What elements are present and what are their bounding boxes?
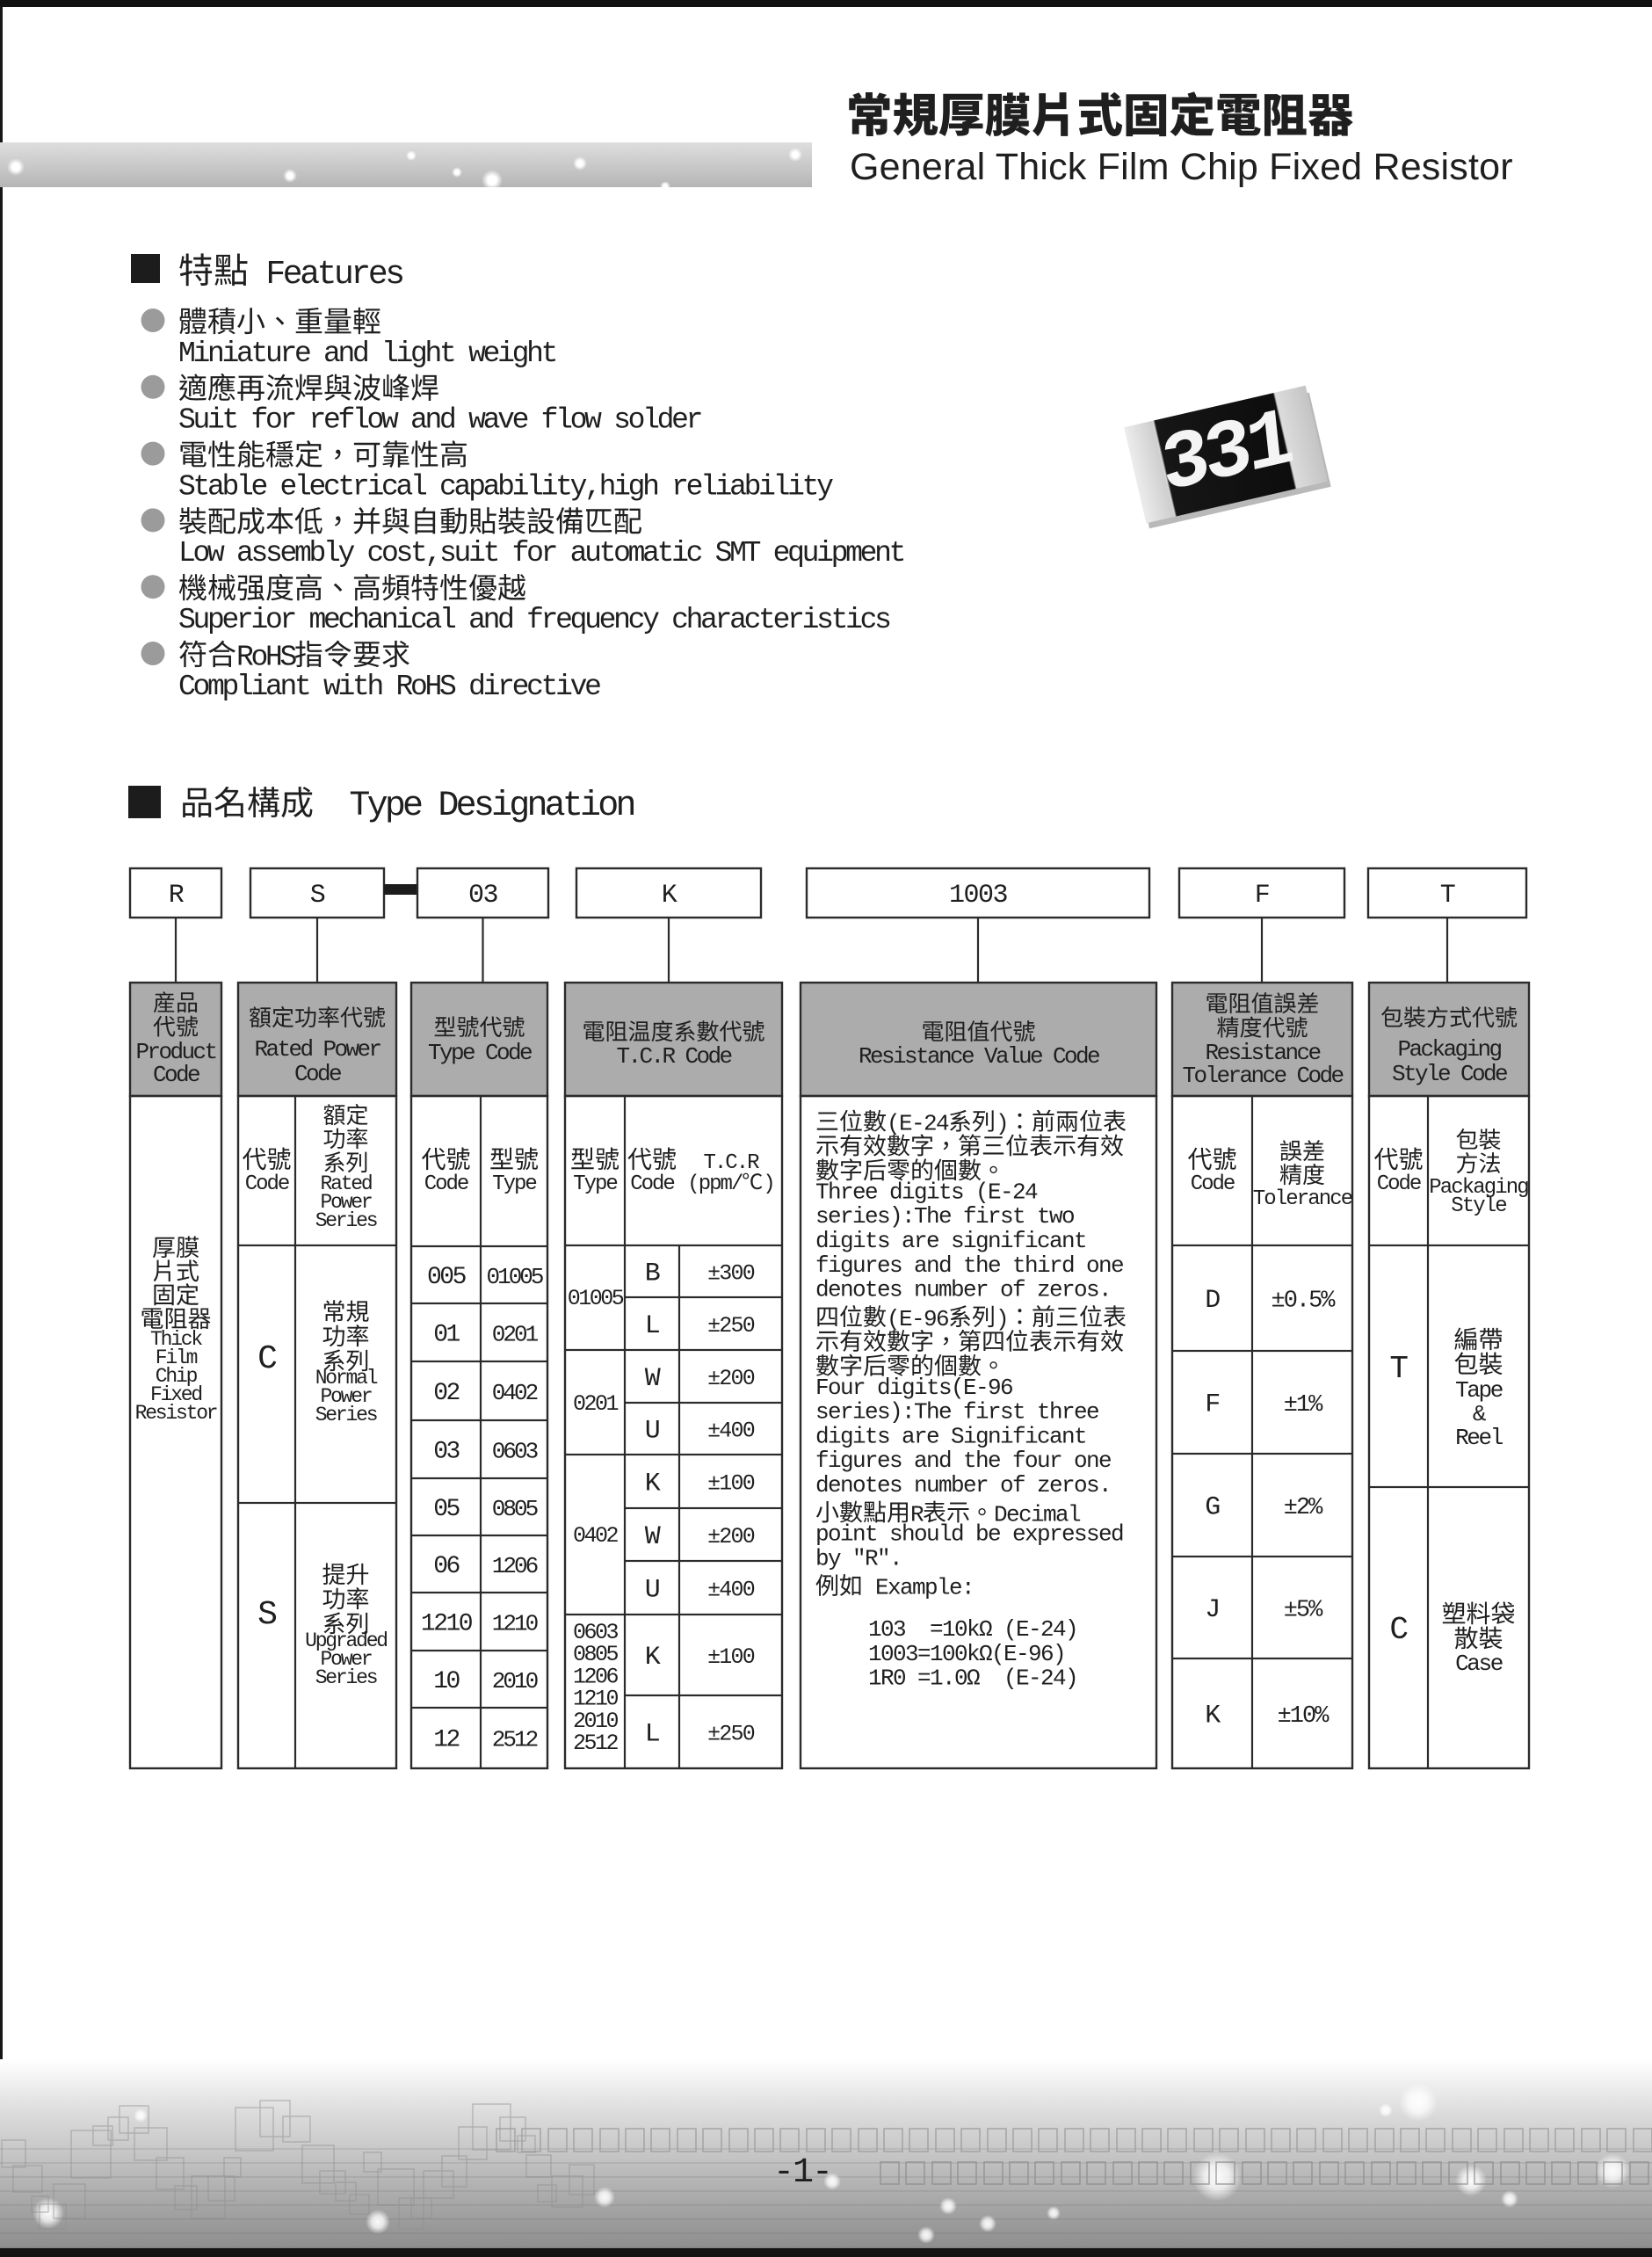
svg-text:±2%: ±2% xyxy=(1284,1495,1323,1521)
svg-text:U: U xyxy=(645,1576,660,1606)
svg-text:General Thick Film Chip Fixed: General Thick Film Chip Fixed Resistor xyxy=(850,146,1513,188)
svg-text:2010: 2010 xyxy=(492,1668,538,1695)
svg-text:±250: ±250 xyxy=(707,1313,755,1339)
svg-text:Type Code: Type Code xyxy=(428,1040,532,1066)
svg-text:Type: Type xyxy=(573,1172,617,1196)
svg-text:±200: ±200 xyxy=(707,1524,755,1549)
svg-text:T.C.R Code: T.C.R Code xyxy=(617,1043,732,1070)
svg-text:point should be expressed: point should be expressed xyxy=(815,1521,1123,1548)
svg-text:S: S xyxy=(257,1596,276,1634)
svg-text:Style Code: Style Code xyxy=(1392,1061,1507,1087)
svg-text:C: C xyxy=(257,1340,277,1378)
svg-text:1210: 1210 xyxy=(492,1611,538,1637)
svg-text:denotes number of zeros.: denotes number of zeros. xyxy=(815,1277,1111,1303)
svg-text:0402: 0402 xyxy=(492,1380,538,1406)
svg-text:±100: ±100 xyxy=(707,1644,755,1670)
svg-text:±250: ±250 xyxy=(707,1722,755,1747)
svg-text:W: W xyxy=(645,1364,661,1394)
svg-text:Case: Case xyxy=(1455,1651,1503,1677)
svg-text:Code: Code xyxy=(630,1172,674,1196)
svg-text:Code: Code xyxy=(294,1061,341,1087)
svg-text:103 =10kΩ (E-24): 103 =10kΩ (E-24) xyxy=(868,1616,1077,1643)
svg-text:12: 12 xyxy=(433,1727,459,1754)
svg-text:0402: 0402 xyxy=(573,1523,619,1549)
svg-text:digits are significant: digits are significant xyxy=(815,1228,1086,1254)
svg-text:(E-24: (E-24 xyxy=(887,1111,949,1137)
svg-text:Tolerance: Tolerance xyxy=(1253,1187,1352,1211)
svg-text:1R0 =1.0Ω (E-24): 1R0 =1.0Ω (E-24) xyxy=(868,1666,1077,1692)
svg-text:Compliant with RoHS directive: Compliant with RoHS directive xyxy=(178,671,600,703)
svg-text:Stable electrical capability,h: Stable electrical capability,high reliab… xyxy=(178,470,833,503)
svg-text:): ) xyxy=(763,1172,773,1196)
svg-text:±0.5%: ±0.5% xyxy=(1272,1288,1337,1315)
svg-text:Type Designation: Type Designation xyxy=(314,787,634,826)
svg-text:(ppm/: (ppm/ xyxy=(687,1172,743,1196)
svg-text:Miniature and light weight: Miniature and light weight xyxy=(178,337,556,370)
svg-text:Series: Series xyxy=(315,1666,377,1689)
svg-text:-1-: -1- xyxy=(773,2153,831,2193)
svg-text:F: F xyxy=(1205,1390,1220,1420)
svg-text:S: S xyxy=(310,881,325,911)
svg-text:K: K xyxy=(662,881,677,911)
svg-text:01005: 01005 xyxy=(568,1286,624,1311)
svg-text:L: L xyxy=(645,1720,660,1750)
svg-text:Reel: Reel xyxy=(1455,1425,1503,1451)
svg-text:Rated Power: Rated Power xyxy=(255,1036,381,1063)
svg-text:L: L xyxy=(645,1311,660,1341)
svg-text:Type: Type xyxy=(492,1172,536,1196)
svg-text:Resistor: Resistor xyxy=(135,1402,217,1425)
svg-text:series):The first three: series):The first three xyxy=(815,1399,1098,1426)
svg-text:Resistance Value Code: Resistance Value Code xyxy=(859,1043,1099,1070)
svg-text:Superior mechanical and freque: Superior mechanical and frequency charac… xyxy=(178,604,890,636)
svg-text:03: 03 xyxy=(468,881,498,911)
svg-text:1210: 1210 xyxy=(421,1611,473,1638)
svg-text:2512: 2512 xyxy=(492,1727,538,1753)
svg-text:W: W xyxy=(645,1522,661,1552)
svg-text:K: K xyxy=(645,1470,661,1499)
svg-text:D: D xyxy=(1205,1286,1220,1316)
svg-text:T: T xyxy=(1389,1351,1408,1387)
svg-text:Code: Code xyxy=(1377,1172,1421,1196)
svg-text:Code: Code xyxy=(1191,1172,1235,1196)
svg-text:RoHS: RoHS xyxy=(236,642,297,674)
svg-text:figures and the third one: figures and the third one xyxy=(815,1252,1123,1279)
svg-text:005: 005 xyxy=(427,1264,467,1291)
svg-text:J: J xyxy=(1205,1595,1220,1625)
svg-text:Code: Code xyxy=(153,1062,199,1088)
svg-text:Series: Series xyxy=(315,1209,377,1232)
svg-text:05: 05 xyxy=(433,1496,460,1523)
svg-text:±400: ±400 xyxy=(707,1578,755,1603)
svg-text:): ) xyxy=(996,1306,1008,1332)
svg-text:T.C.R: T.C.R xyxy=(704,1151,760,1175)
svg-text:01: 01 xyxy=(433,1322,460,1349)
svg-text:03: 03 xyxy=(433,1439,460,1466)
svg-text:10: 10 xyxy=(433,1668,460,1695)
svg-text:±300: ±300 xyxy=(707,1261,755,1287)
svg-text:Features: Features xyxy=(249,256,402,294)
svg-text:±5%: ±5% xyxy=(1284,1598,1323,1624)
svg-text:U: U xyxy=(645,1417,660,1447)
svg-text:0201: 0201 xyxy=(573,1391,619,1417)
svg-text:Packaging: Packaging xyxy=(1398,1036,1502,1063)
svg-text:by "R".: by "R". xyxy=(815,1545,902,1571)
svg-text:Low assembly cost,suit for aut: Low assembly cost,suit for automatic SMT… xyxy=(178,537,904,570)
svg-text:figures and the four one: figures and the four one xyxy=(815,1448,1111,1474)
svg-text:1003: 1003 xyxy=(949,881,1008,911)
svg-text:F: F xyxy=(1255,881,1270,911)
svg-text:series):The first two: series):The first two xyxy=(815,1203,1074,1230)
svg-text:Code: Code xyxy=(245,1172,289,1196)
svg-text:K: K xyxy=(645,1643,661,1673)
svg-text:±400: ±400 xyxy=(707,1419,755,1444)
svg-text:Tolerance Code: Tolerance Code xyxy=(1183,1063,1344,1089)
svg-text:0201: 0201 xyxy=(492,1322,539,1348)
svg-text:Example:: Example: xyxy=(863,1575,974,1601)
svg-text:0805: 0805 xyxy=(492,1496,538,1522)
svg-text:2512: 2512 xyxy=(573,1731,619,1756)
svg-text:digits are Significant: digits are Significant xyxy=(815,1423,1086,1449)
svg-text:T: T xyxy=(1440,881,1455,911)
svg-text:Style: Style xyxy=(1451,1194,1506,1218)
svg-text:1003=100kΩ(E-96): 1003=100kΩ(E-96) xyxy=(868,1641,1065,1667)
svg-text:06: 06 xyxy=(433,1553,459,1580)
svg-text:±200: ±200 xyxy=(707,1366,755,1391)
svg-text:Series: Series xyxy=(315,1404,377,1426)
svg-text:&: & xyxy=(1473,1401,1487,1427)
svg-text:1206: 1206 xyxy=(492,1553,538,1579)
svg-text:0603: 0603 xyxy=(492,1439,538,1465)
svg-text:C: C xyxy=(1389,1612,1408,1648)
svg-text:Code: Code xyxy=(424,1172,468,1196)
svg-text:01005: 01005 xyxy=(487,1264,543,1290)
svg-text:Tape: Tape xyxy=(1455,1377,1503,1404)
svg-text:Four digits(E-96: Four digits(E-96 xyxy=(815,1375,1012,1401)
svg-text:Suit for reflow and wave flow: Suit for reflow and wave flow solder xyxy=(178,404,701,437)
svg-text:±1%: ±1% xyxy=(1284,1392,1323,1419)
svg-text:denotes number of zeros.: denotes number of zeros. xyxy=(815,1472,1111,1499)
svg-text:): ) xyxy=(996,1111,1008,1137)
svg-text:R: R xyxy=(169,881,185,911)
svg-text:B: B xyxy=(645,1259,660,1289)
svg-text:±10%: ±10% xyxy=(1278,1703,1330,1730)
svg-text:Three digits (E-24: Three digits (E-24 xyxy=(815,1179,1038,1205)
svg-text:(E-96: (E-96 xyxy=(887,1306,948,1332)
svg-text:K: K xyxy=(1205,1702,1221,1731)
svg-text:G: G xyxy=(1205,1493,1220,1523)
svg-text:±100: ±100 xyxy=(707,1471,755,1497)
svg-text:02: 02 xyxy=(433,1380,459,1407)
